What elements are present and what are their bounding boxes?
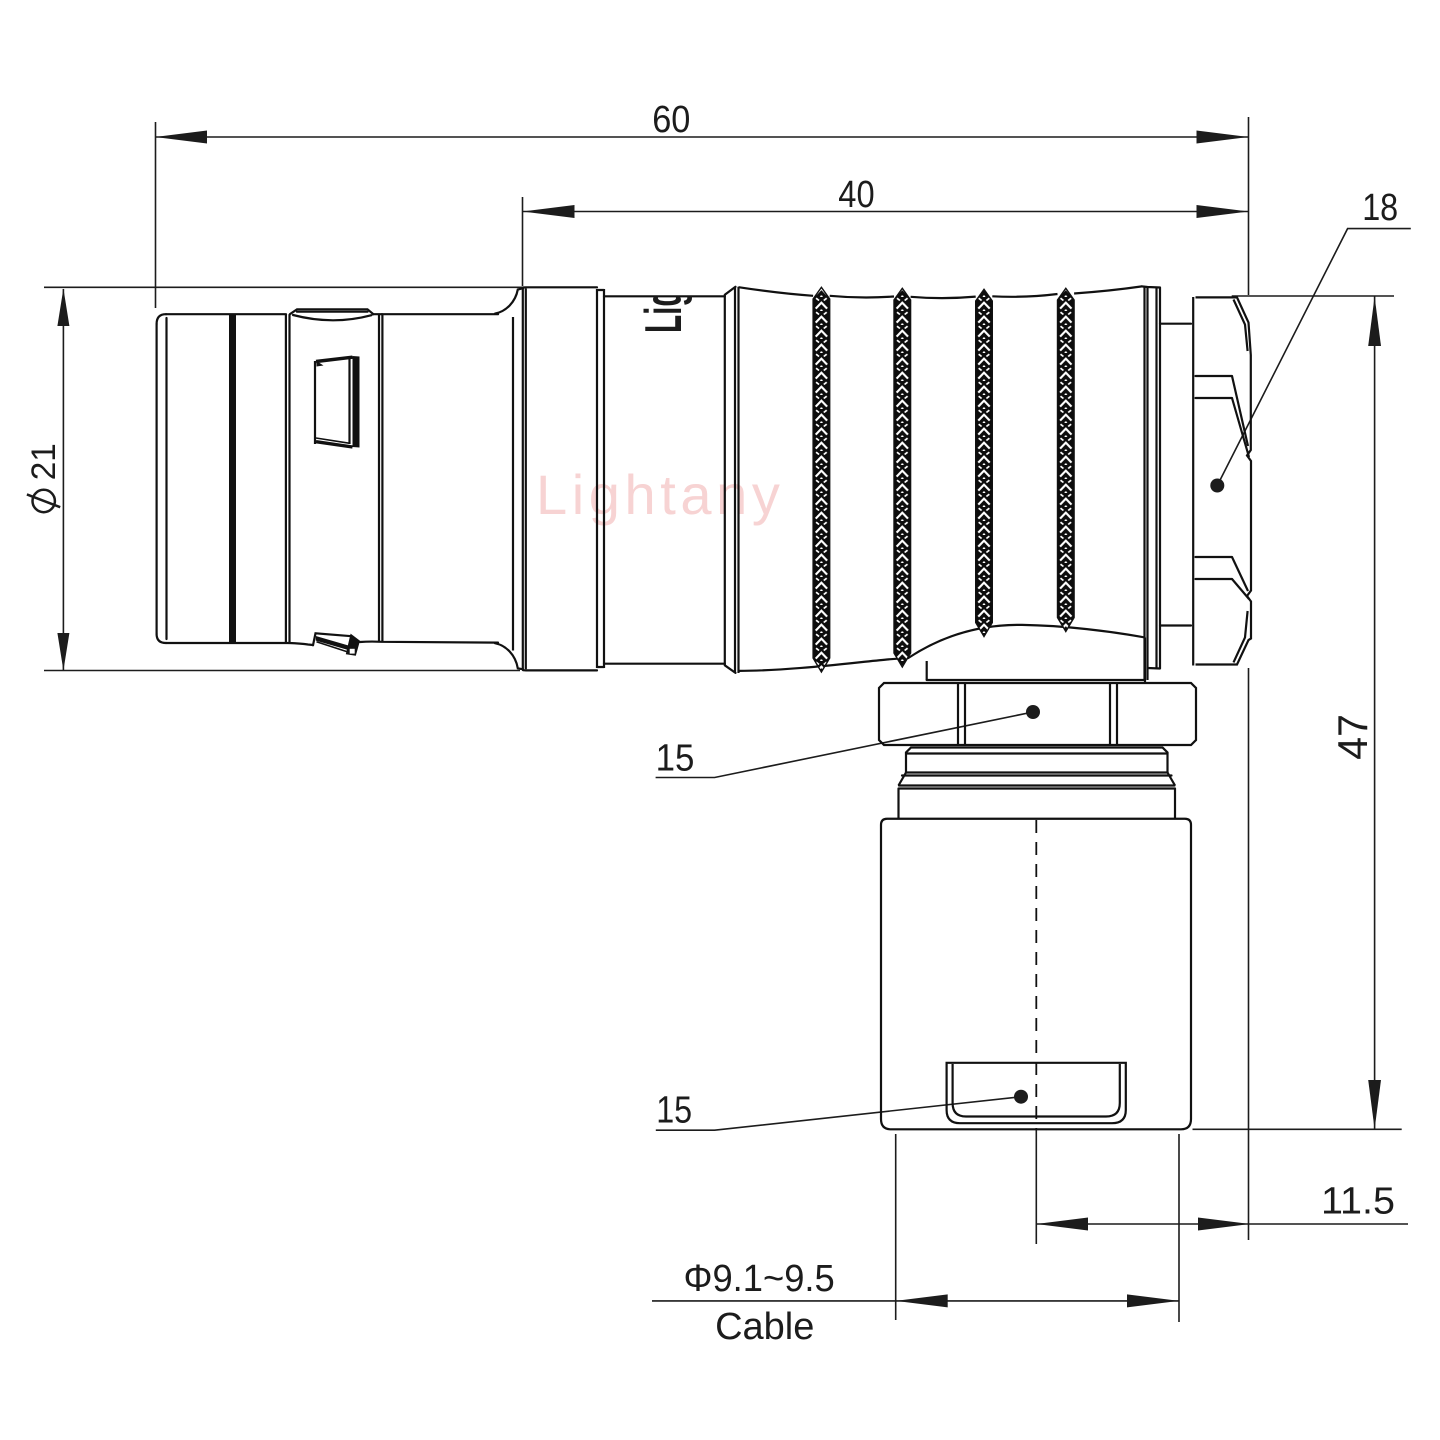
svg-text:60: 60	[652, 99, 690, 141]
svg-text:Lightany: Lightany	[536, 463, 785, 526]
svg-text:Φ9.1~9.5: Φ9.1~9.5	[684, 1258, 835, 1300]
svg-text:18: 18	[1362, 187, 1398, 229]
svg-text:15: 15	[656, 1090, 692, 1132]
svg-text:21: 21	[25, 443, 63, 480]
svg-text:11.5: 11.5	[1321, 1181, 1395, 1223]
svg-text:15: 15	[656, 738, 695, 780]
svg-text:40: 40	[838, 174, 874, 216]
svg-text:47: 47	[1329, 714, 1376, 760]
svg-text:Cable: Cable	[715, 1306, 814, 1348]
